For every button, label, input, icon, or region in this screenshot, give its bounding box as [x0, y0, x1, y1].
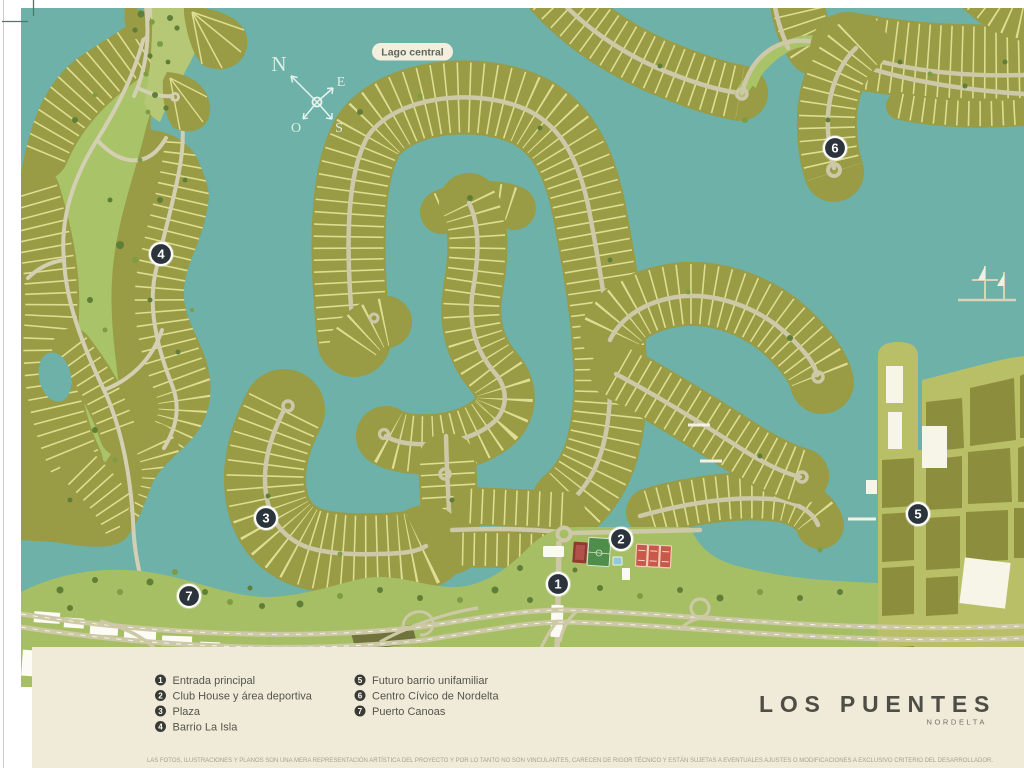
svg-text:3: 3 [158, 707, 163, 716]
svg-text:E: E [337, 75, 346, 90]
svg-text:1: 1 [554, 577, 561, 592]
svg-text:N: N [271, 52, 286, 76]
svg-text:Plaza: Plaza [173, 706, 201, 718]
svg-text:LOS PUENTES: LOS PUENTES [759, 691, 996, 717]
svg-text:3: 3 [262, 511, 269, 526]
svg-text:4: 4 [158, 723, 163, 732]
svg-text:Puerto Canoas: Puerto Canoas [372, 706, 446, 718]
svg-text:6: 6 [358, 692, 363, 701]
svg-text:7: 7 [358, 707, 363, 716]
svg-text:7: 7 [185, 589, 192, 604]
svg-text:O: O [291, 121, 301, 136]
svg-text:5: 5 [358, 676, 363, 685]
svg-text:NORDELTA: NORDELTA [926, 718, 987, 727]
svg-text:S: S [335, 121, 343, 136]
svg-text:6: 6 [831, 141, 838, 156]
svg-text:2: 2 [158, 692, 163, 701]
svg-text:Barrio La Isla: Barrio La Isla [173, 722, 239, 734]
svg-text:4: 4 [157, 247, 165, 262]
svg-text:5: 5 [914, 507, 921, 522]
svg-text:Centro Cívico de Nordelta: Centro Cívico de Nordelta [372, 691, 499, 703]
svg-text:Futuro barrio unifamiliar: Futuro barrio unifamiliar [372, 675, 488, 687]
svg-text:1: 1 [158, 676, 163, 685]
svg-text:LAS FOTOS, ILUSTRACIONES Y PLA: LAS FOTOS, ILUSTRACIONES Y PLANOS SON UN… [147, 757, 993, 764]
svg-text:Lago central: Lago central [381, 47, 444, 59]
svg-text:2: 2 [617, 532, 624, 547]
svg-text:Club House y área deportiva: Club House y área deportiva [173, 691, 313, 703]
svg-text:Entrada principal: Entrada principal [173, 675, 256, 687]
